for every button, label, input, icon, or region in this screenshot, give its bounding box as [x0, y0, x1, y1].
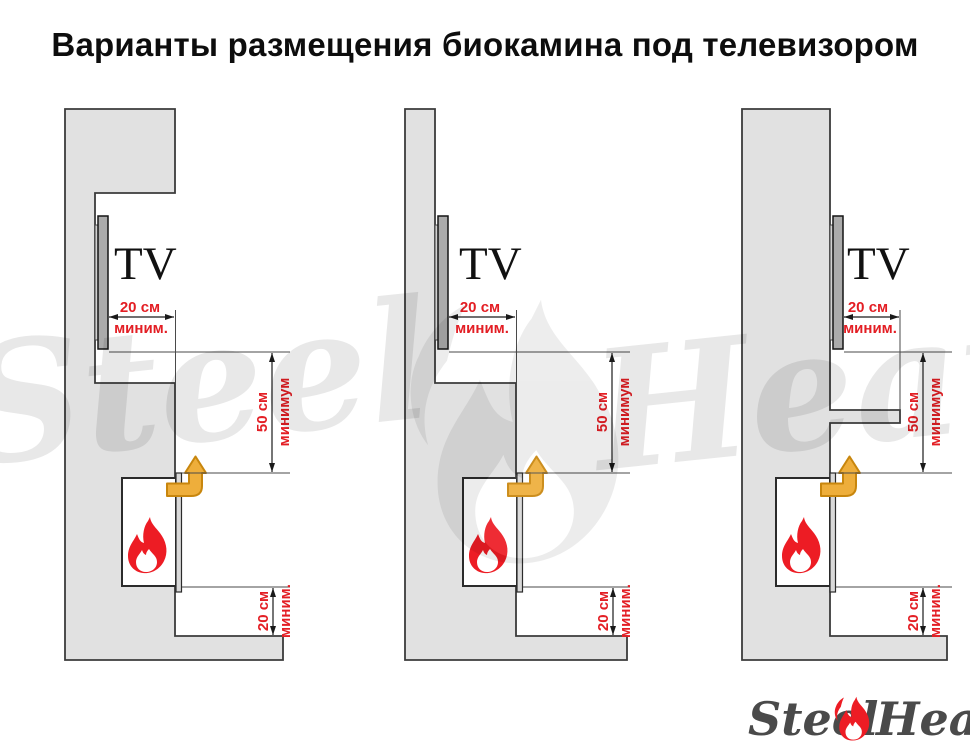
- wall-profile: [742, 109, 947, 660]
- dim-50cm-qualifier: минимум: [276, 378, 293, 447]
- tv-screen: [438, 216, 448, 349]
- tv-screen: [98, 216, 108, 349]
- dim-20cm-top: 20 см миним.: [109, 299, 174, 337]
- dim-50cm-qualifier: минимум: [927, 378, 944, 447]
- diagram-variant-3: TV 20 см миним. 50 с: [742, 109, 952, 660]
- dim-50cm-qualifier: минимум: [616, 378, 633, 447]
- dim-20cm-bottom-value: 20 см: [255, 591, 272, 631]
- logo-word-heat: Heat: [874, 692, 970, 746]
- diagram-variant-1: TV 20 см миним.: [65, 109, 294, 660]
- dim-20cm-top-value: 20 см: [848, 299, 888, 316]
- dim-20cm-top-qualifier: миним.: [114, 320, 168, 337]
- dim-20cm-top-value: 20 см: [460, 299, 500, 316]
- infographic-canvas: Варианты размещения биокамина под телеви…: [0, 0, 970, 749]
- tv-label: TV: [459, 238, 522, 290]
- dim-20cm-bottom: 20 см миним.: [255, 584, 294, 638]
- tv-label: TV: [114, 238, 177, 290]
- dim-50cm: 50 см минимум: [254, 353, 293, 472]
- dim-50cm-value: 50 см: [905, 392, 922, 432]
- tv-label: TV: [847, 238, 910, 290]
- diagram-variant-2: TV 20 см миним. 50 с: [405, 109, 634, 660]
- dim-20cm-top-qualifier: миним.: [455, 320, 509, 337]
- diagram-layer: TV 20 см миним.: [0, 0, 970, 749]
- dim-20cm-top: 20 см миним.: [843, 299, 899, 337]
- dim-50cm-value: 50 см: [254, 392, 271, 432]
- dim-20cm-top: 20 см миним.: [449, 299, 515, 337]
- dim-20cm-bottom-value: 20 см: [905, 591, 922, 631]
- dim-20cm-bottom-value: 20 см: [595, 591, 612, 631]
- dim-20cm-bottom-qualifier: миним.: [927, 584, 944, 638]
- dim-50cm-value: 50 см: [594, 392, 611, 432]
- dim-50cm: 50 см минимум: [594, 353, 633, 472]
- brand-logo: Steel Heat: [748, 692, 970, 746]
- dim-20cm-bottom: 20 см миним.: [595, 584, 634, 638]
- dim-50cm: 50 см минимум: [905, 353, 944, 472]
- dim-20cm-bottom-qualifier: миним.: [277, 584, 294, 638]
- dim-20cm-bottom-qualifier: миним.: [617, 584, 634, 638]
- dim-20cm-top-qualifier: миним.: [843, 320, 897, 337]
- dim-20cm-top-value: 20 см: [120, 299, 160, 316]
- dim-20cm-bottom: 20 см миним.: [905, 584, 944, 638]
- tv-screen: [833, 216, 843, 349]
